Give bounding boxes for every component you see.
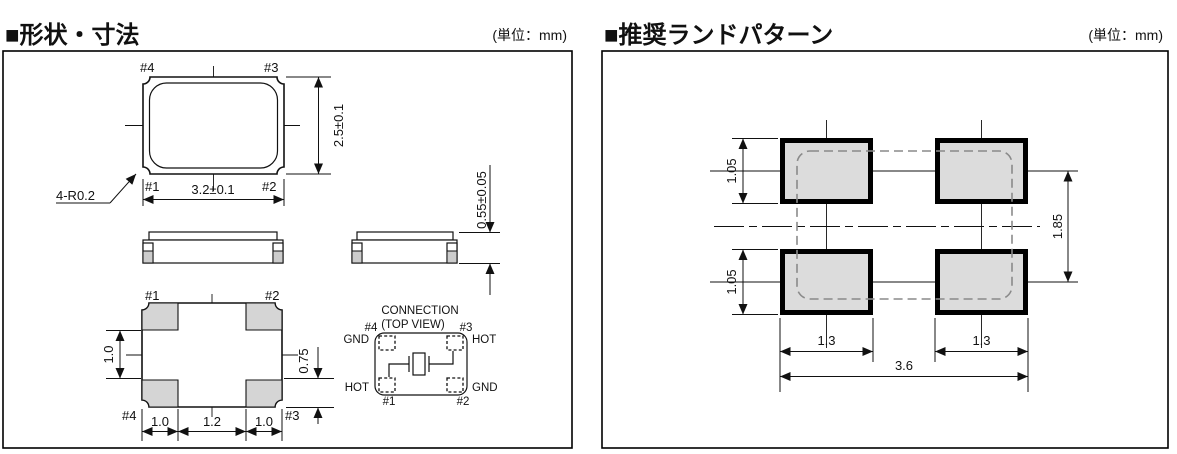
conn-pin-1: #1: [383, 396, 396, 408]
conn-signal-gnd-br: GND: [472, 382, 498, 394]
dim-pad-left: 1.0: [101, 345, 116, 363]
pin-label-1: #1: [145, 288, 159, 303]
land-pad-top-left: [783, 141, 871, 202]
bottom-pad-4: [142, 380, 178, 407]
conn-pin-2: #2: [457, 396, 470, 408]
dim-pad-right: 0.75: [296, 348, 311, 373]
corner-radius-callout: 4-R0.2: [56, 188, 95, 203]
package-bottom-view: #1 #2 #4 #3 1.0 0.75 1.0 1.2 1.0: [101, 288, 334, 441]
conn-pad-2: [447, 378, 463, 392]
datasheet-drawing: ■形状・寸法 (単位：mm) ■推奨ランドパターン (単位：mm) #4 #3 …: [0, 0, 1177, 454]
conn-pin-4: #4: [365, 322, 378, 334]
side-view-pad: [143, 251, 153, 263]
conn-pad-3: [447, 336, 463, 350]
connection-title-1: CONNECTION: [381, 305, 458, 317]
dim-bottom-2: 1.2: [203, 414, 221, 429]
pin-label-3: #3: [285, 408, 299, 423]
pin-label-2: #2: [265, 288, 279, 303]
conn-signal-hot-tr: HOT: [472, 334, 496, 346]
dim-thickness: 0.55±0.05: [474, 171, 489, 229]
side-view-pad: [273, 251, 283, 263]
land-pattern: 1.05 1.05 1.85 1.3 1.3 3.6: [710, 120, 1078, 392]
side-view-front-body: [143, 240, 283, 263]
dim-pad-w-left: 1.3: [817, 333, 835, 348]
package-outline: [143, 77, 284, 174]
conn-signal-hot-bl: HOT: [345, 382, 369, 394]
dim-pitch-v: 1.85: [1050, 214, 1065, 239]
dim-pad-h-bottom: 1.05: [724, 269, 739, 294]
dim-height: 2.5±0.1: [331, 104, 346, 147]
dim-bottom-1: 1.0: [151, 414, 169, 429]
dim-total-w: 3.6: [895, 358, 913, 373]
dim-width: 3.2±0.1: [191, 182, 234, 197]
dim-pad-w-right: 1.3: [972, 333, 990, 348]
conn-signal-gnd-tl: GND: [343, 334, 369, 346]
side-view-end-lid: [357, 232, 453, 240]
bottom-pad-3: [246, 380, 282, 407]
left-section-title: ■形状・寸法: [5, 22, 140, 49]
connection-title-2: (TOP VIEW): [381, 319, 445, 331]
pin-label-4: #4: [122, 408, 136, 423]
right-unit-label: (単位：mm): [1088, 27, 1163, 43]
pin-label-2: #2: [262, 179, 276, 194]
dim-bottom-3: 1.0: [255, 414, 273, 429]
side-view-pad: [352, 251, 362, 263]
dim-pad-h-top: 1.05: [724, 158, 739, 183]
pin-label-4: #4: [140, 60, 154, 75]
land-pad-bottom-left: [783, 252, 871, 313]
pin-label-1: #1: [145, 179, 159, 194]
conn-pad-1: [379, 378, 395, 392]
conn-pin-3: #3: [460, 322, 473, 334]
bottom-pad-1: [142, 303, 178, 330]
right-panel-frame: [602, 51, 1168, 448]
side-view-pad: [447, 251, 457, 263]
conn-pad-4: [379, 336, 395, 350]
bottom-pad-2: [246, 303, 282, 330]
pin-label-3: #3: [264, 60, 278, 75]
crystal-element: [413, 353, 425, 375]
right-section-title: ■推奨ランドパターン: [604, 22, 833, 49]
connection-diagram: CONNECTION (TOP VIEW) #4 #3 GND HOT HOT …: [343, 305, 497, 408]
callout-leader-arrow: [110, 174, 136, 203]
left-unit-label: (単位：mm): [492, 27, 567, 43]
side-view-end-body: [352, 240, 457, 263]
package-top-view: #4 #3 #1 #2 3.2±0.1 2.5±0.1 4-R0.2: [56, 60, 346, 206]
drawing-canvas: ■形状・寸法 (単位：mm) ■推奨ランドパターン (単位：mm) #4 #3 …: [0, 0, 1177, 454]
side-view-front-lid: [149, 232, 277, 240]
